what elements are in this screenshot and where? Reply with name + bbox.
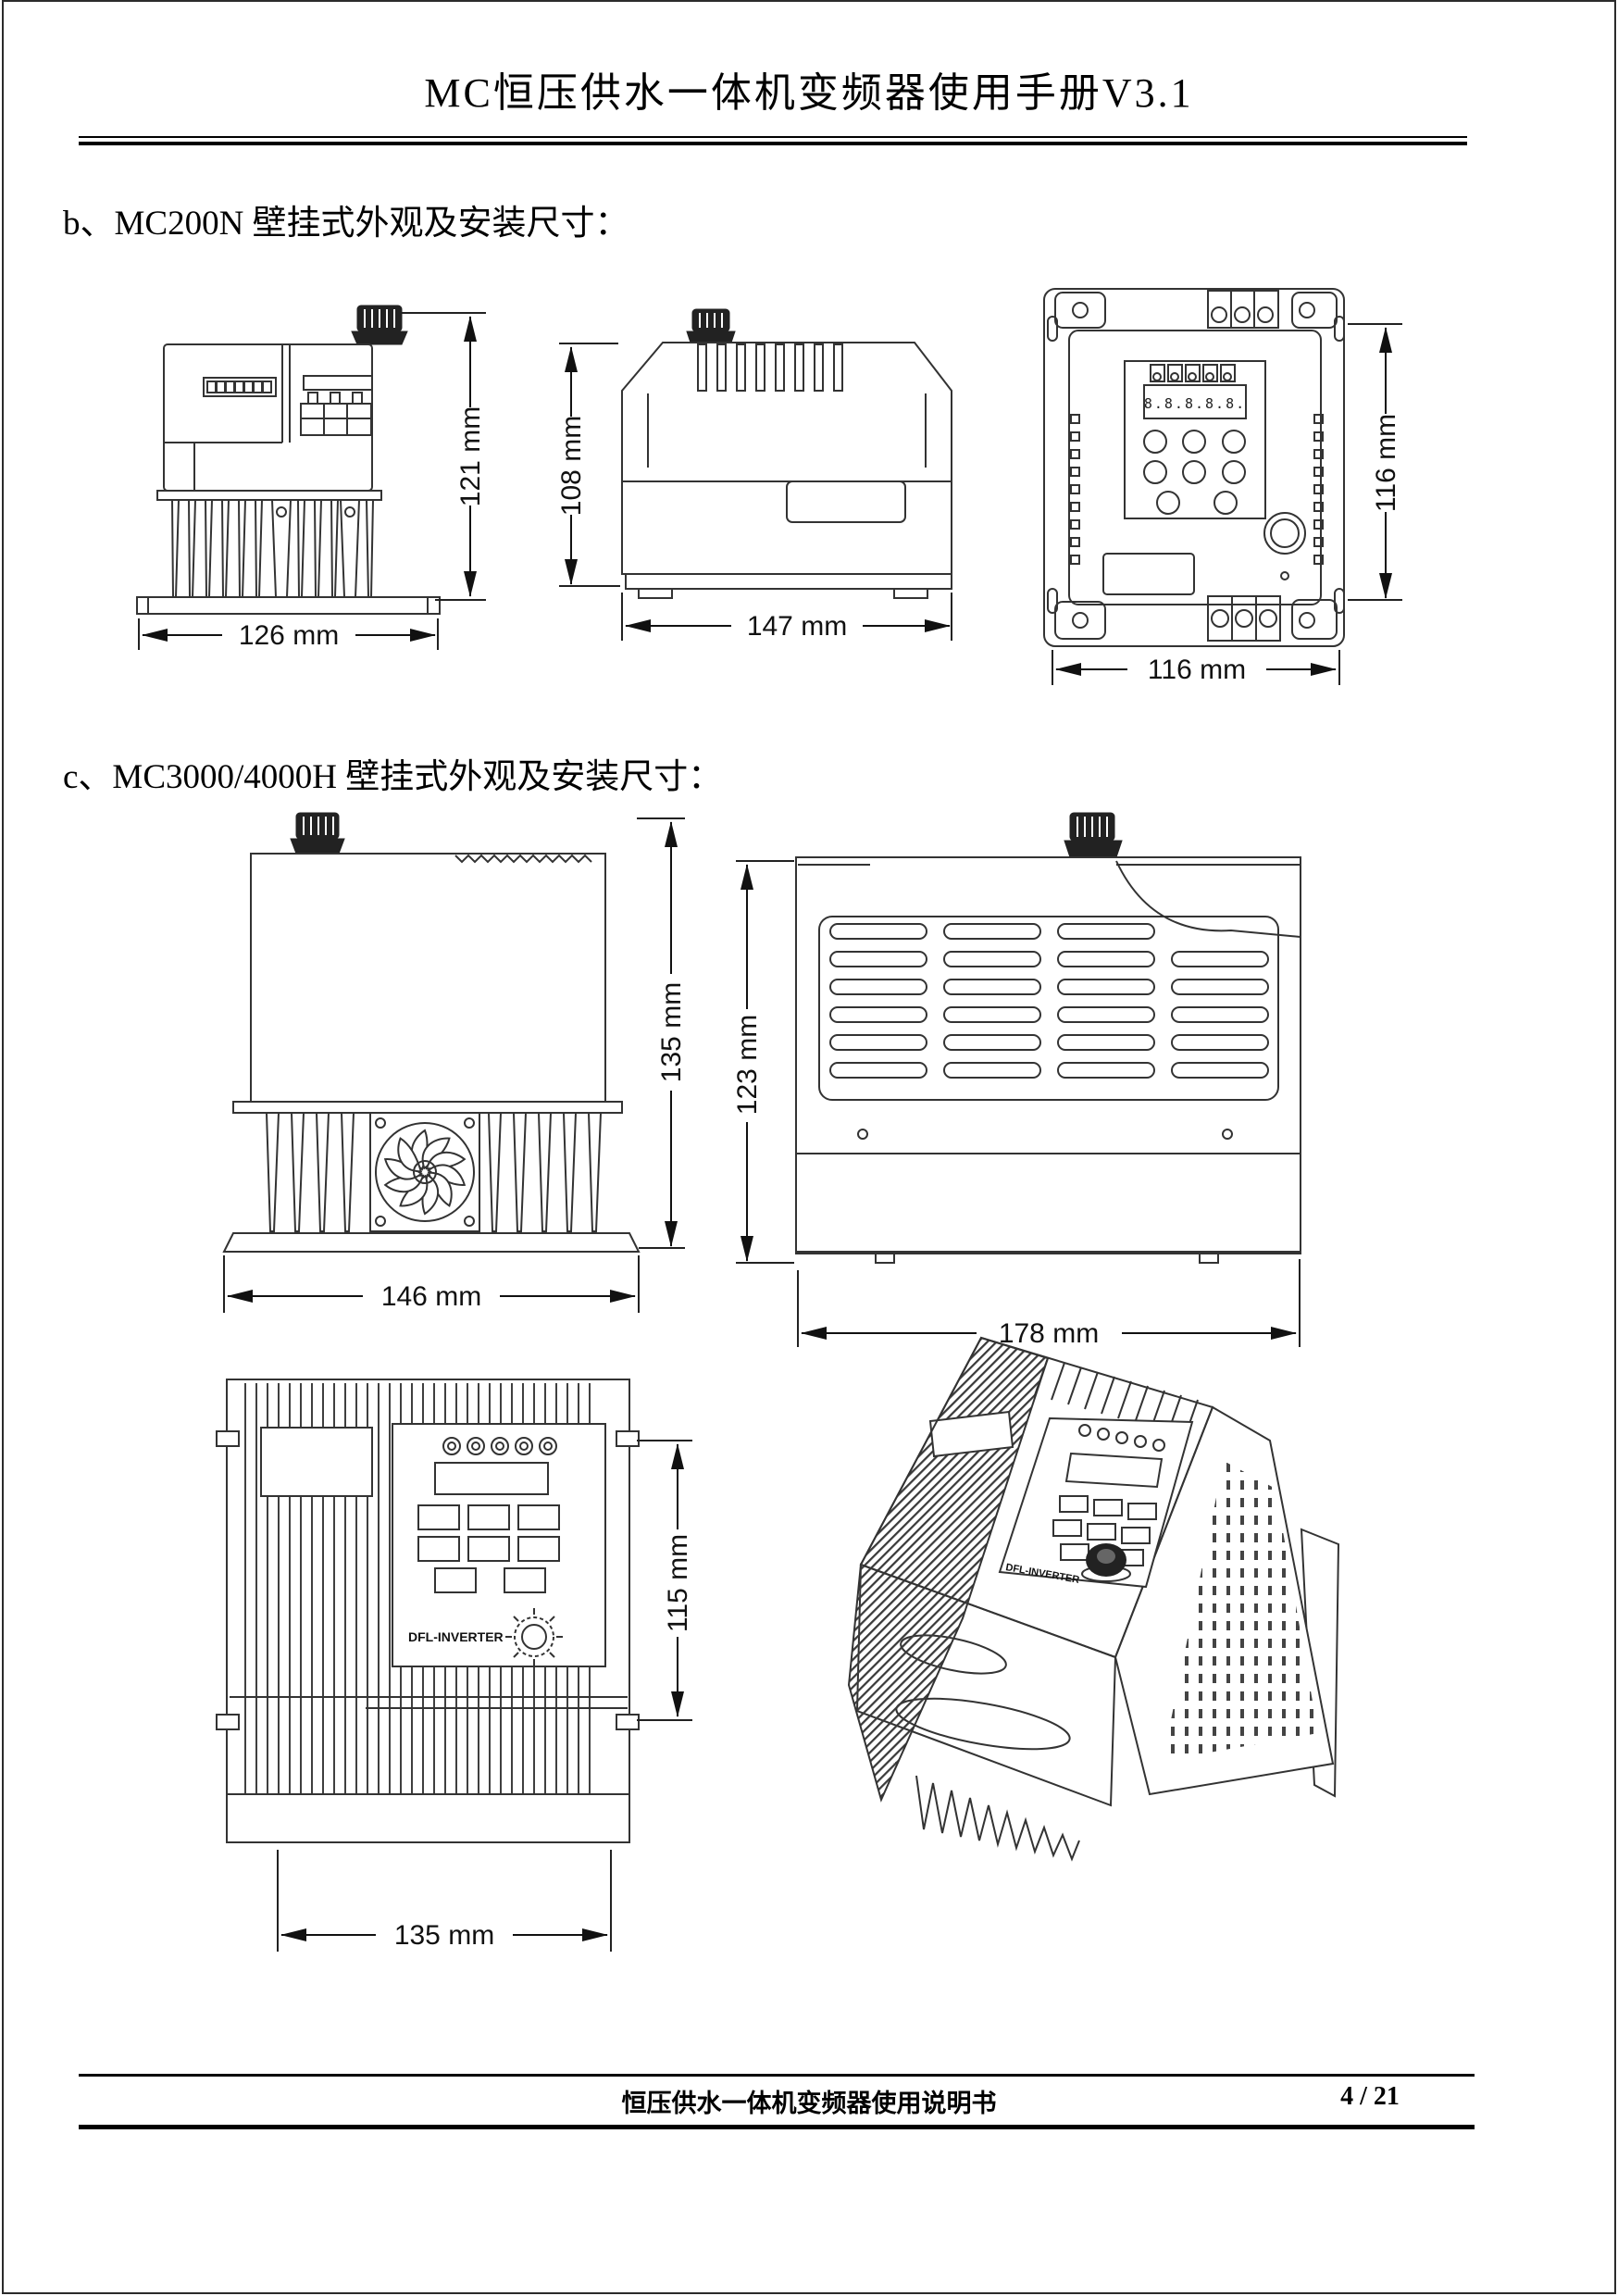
dimension-label: 116 mm	[1148, 655, 1246, 685]
mc200n-side-view-drawing: 108 mm 147 mm	[556, 309, 952, 642]
footer-page-number: 4 / 21	[1296, 2082, 1444, 2112]
footer-rule-top	[79, 2074, 1475, 2077]
dimension-label: 126 mm	[239, 620, 339, 651]
mc3000-front-view-drawing: 135 mm 146 mm	[224, 813, 687, 1313]
dimension-label: 147 mm	[747, 611, 847, 642]
mc3000-top-view-drawing: DFL-INVERTER 115 mm	[217, 1379, 693, 1952]
mc3000-side-view-drawing: 123 mm 178 mm	[732, 813, 1301, 1349]
terminal-block	[301, 393, 371, 435]
manual-page: MC恒压供水一体机变频器使用手册V3.1 b、MC200N 壁挂式外观及安装尺寸…	[0, 0, 1618, 2296]
technical-drawings: 121 mm 126 mm	[0, 0, 1618, 2296]
dimension-label: 146 mm	[381, 1281, 481, 1312]
dimension-label: 135 mm	[656, 982, 687, 1082]
dimension-label: 178 mm	[999, 1318, 1099, 1349]
dimension-label: 135 mm	[394, 1920, 494, 1951]
terminal-block-bottom	[1208, 596, 1280, 641]
heatsink-fins	[172, 500, 373, 597]
terminal-block-top	[1208, 291, 1278, 328]
footer-rule-bottom	[79, 2125, 1475, 2129]
dimension-label: 123 mm	[732, 1015, 763, 1115]
vent-slits	[698, 344, 842, 391]
vent-grid	[819, 917, 1278, 1100]
keypad-panel: 8.8.8.8.8.	[1125, 361, 1265, 518]
dimension-label: 108 mm	[556, 416, 587, 516]
knob-icon	[291, 813, 344, 854]
mc3000-perspective-view-drawing: DFL-INVERTER	[849, 1338, 1338, 1859]
cooling-fan-icon	[370, 1113, 479, 1231]
keypad-panel: DFL-INVERTER	[392, 1424, 605, 1666]
dimension-label: 116 mm	[1371, 414, 1401, 512]
heatsink-fins	[916, 1776, 1079, 1859]
knob-icon	[1264, 513, 1305, 554]
side-vents	[1071, 415, 1323, 564]
dimension-label: 115 mm	[663, 1534, 693, 1632]
display-digits: 8.8.8.8.8.	[1144, 395, 1246, 412]
knob-icon	[352, 306, 407, 344]
mc200n-front-view-drawing: 121 mm 126 mm	[137, 306, 486, 651]
brand-label: DFL-INVERTER	[408, 1629, 504, 1644]
knob-icon	[687, 309, 735, 343]
knob-icon	[1064, 813, 1122, 857]
dimension-label: 121 mm	[455, 406, 486, 506]
mc200n-back-view-drawing: 8.8.8.8.8.	[1044, 289, 1402, 685]
